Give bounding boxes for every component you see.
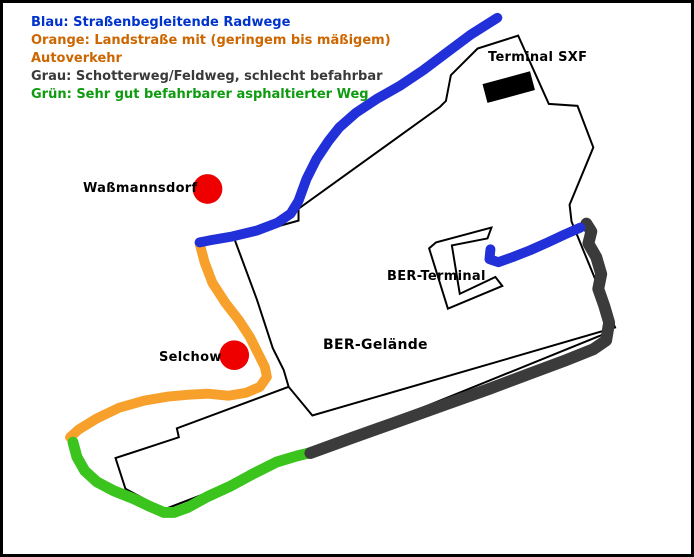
ber-bike-route-map: Blau: Straßenbegleitende Radwege Orange:… bbox=[0, 0, 694, 557]
legend-line-blue: Blau: Straßenbegleitende Radwege bbox=[31, 14, 451, 32]
legend-line-orange-2: Autoverkehr bbox=[31, 50, 451, 68]
legend-line-green: Grün: Sehr gut befahrbarer asphaltierter… bbox=[31, 86, 451, 104]
legend-line-gray: Grau: Schotterweg/Feldweg, schlecht befa… bbox=[31, 68, 451, 86]
label-wassmannsdorf: Waßmannsdorf bbox=[83, 181, 197, 196]
blue-radweg-route-terminal bbox=[489, 228, 580, 263]
label-selchow: Selchow bbox=[159, 350, 222, 365]
legend-line-orange-1: Orange: Landstraße mit (geringem bis mäß… bbox=[31, 32, 451, 50]
legend: Blau: Straßenbegleitende Radwege Orange:… bbox=[31, 14, 451, 104]
selchow-dot bbox=[219, 340, 249, 370]
label-terminal-sxf: Terminal SXF bbox=[488, 50, 587, 65]
terminal-sxf-marker bbox=[483, 71, 535, 103]
green-asphalt-route bbox=[73, 442, 308, 512]
label-ber-gelaende: BER-Gelände bbox=[323, 337, 428, 353]
label-ber-terminal: BER-Terminal bbox=[387, 269, 486, 284]
orange-landstrasse-route bbox=[70, 243, 267, 437]
